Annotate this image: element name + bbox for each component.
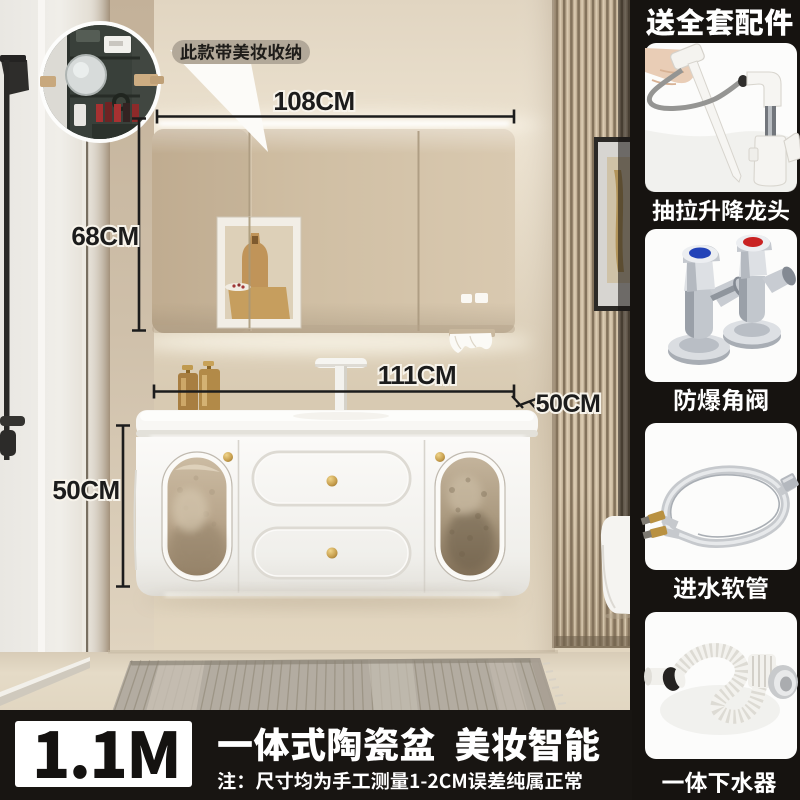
svg-text:50CM: 50CM xyxy=(52,475,119,505)
svg-text:50CM: 50CM xyxy=(536,390,601,418)
svg-text:68CM: 68CM xyxy=(71,221,138,251)
svg-text:111CM: 111CM xyxy=(378,360,456,390)
svg-text:108CM: 108CM xyxy=(273,86,354,116)
